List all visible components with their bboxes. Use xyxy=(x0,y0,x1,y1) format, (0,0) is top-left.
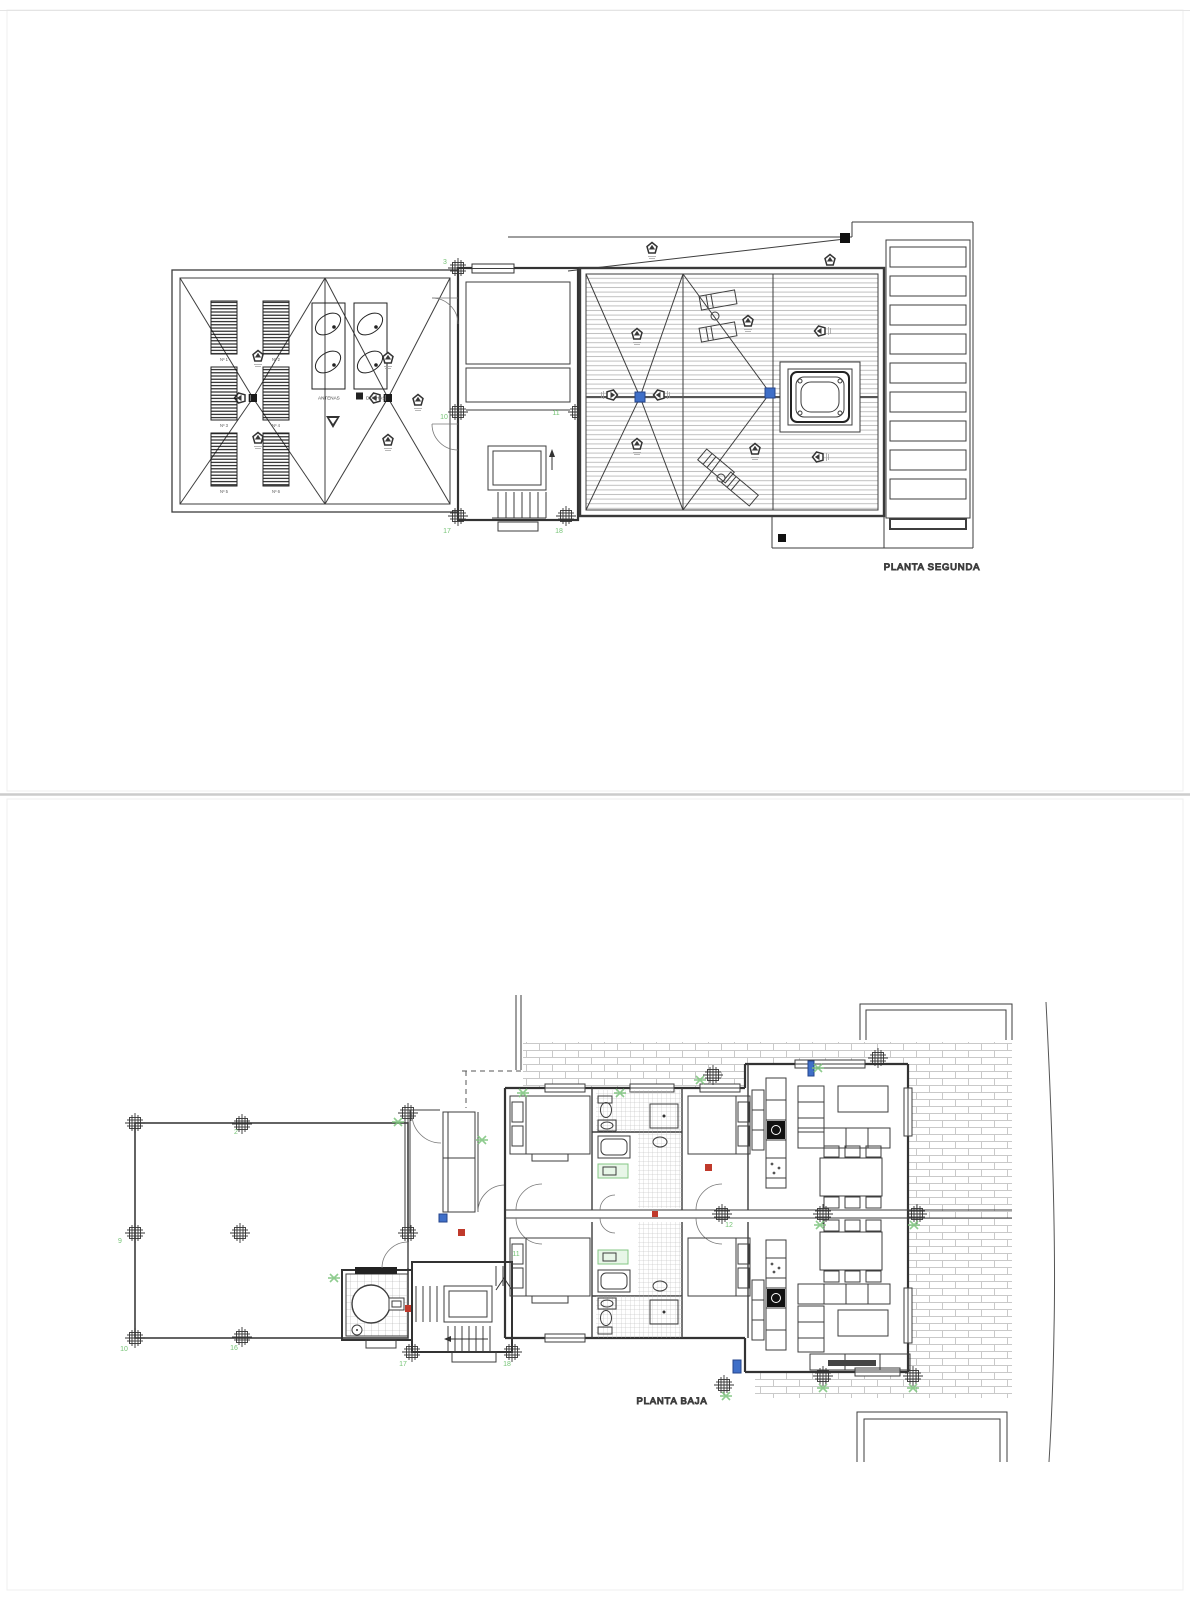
column-marker xyxy=(232,1327,252,1347)
antenas-label: ANTENAS xyxy=(318,396,340,401)
grid-number: 10 xyxy=(440,414,448,421)
water-tank xyxy=(352,1285,390,1323)
door-swing xyxy=(412,1114,441,1143)
plot-boundary-curve xyxy=(1046,1002,1055,1462)
living-rooms xyxy=(798,1086,910,1370)
coffee-table xyxy=(838,1086,888,1112)
plan-baja: PLANTA BAJA 29101611121718 xyxy=(118,995,1054,1462)
solar-collectors xyxy=(311,303,387,389)
door-swing xyxy=(696,1184,722,1210)
bathrooms-upper xyxy=(596,1090,682,1208)
grid-number: 17 xyxy=(443,528,451,535)
marker-red xyxy=(705,1164,712,1171)
marker-green xyxy=(328,1274,340,1282)
door-swing xyxy=(516,1218,542,1244)
terrace-node xyxy=(778,534,786,542)
drawing-canvas: Nº 1 Nº 2 Nº 3 Nº 4 Nº 5 Nº 6 xyxy=(0,0,1190,1600)
column-marker xyxy=(714,1375,734,1395)
drain-icon xyxy=(253,433,263,449)
utility-room xyxy=(342,1242,412,1348)
marker-red xyxy=(458,1229,465,1236)
marker-blue xyxy=(733,1360,741,1373)
grid-number: 11 xyxy=(512,1251,519,1258)
segunda-core xyxy=(432,258,604,531)
grid-number: 3 xyxy=(443,259,447,266)
marker-green xyxy=(392,1118,404,1126)
column-marker xyxy=(448,402,468,422)
column-marker xyxy=(712,1204,732,1224)
column-marker xyxy=(125,1113,145,1133)
panel-label: Nº 2 xyxy=(272,357,281,362)
marker-red xyxy=(652,1211,658,1217)
deck-node-blue xyxy=(635,392,645,402)
column-marker xyxy=(502,1342,522,1362)
hot-tub xyxy=(780,362,860,432)
coffee-table xyxy=(838,1310,888,1336)
planter-bottom-right xyxy=(857,1412,1007,1462)
column-marker xyxy=(230,1223,250,1243)
door-swing xyxy=(696,1218,722,1244)
sofa xyxy=(798,1284,890,1304)
entrance-hall xyxy=(405,1110,505,1236)
plan-segunda: Nº 1 Nº 2 Nº 3 Nº 4 Nº 5 Nº 6 xyxy=(172,222,980,573)
panel-label: Nº 3 xyxy=(220,423,229,428)
floorplan-svg: Nº 1 Nº 2 Nº 3 Nº 4 Nº 5 Nº 6 xyxy=(0,0,1190,1600)
dining-table xyxy=(820,1232,882,1270)
bed xyxy=(688,1096,750,1154)
door-swing xyxy=(382,1242,408,1268)
drain-icon xyxy=(413,395,423,411)
grid-number: 10 xyxy=(120,1346,128,1353)
bed xyxy=(510,1096,590,1154)
hob xyxy=(767,1289,785,1307)
kitchens xyxy=(733,1061,814,1373)
plan-baja-title: PLANTA BAJA xyxy=(637,1396,708,1407)
plan-segunda-title: PLANTA SEGUNDA xyxy=(884,562,981,573)
dining-table xyxy=(820,1158,882,1196)
drain-icon xyxy=(383,353,393,369)
antenna-symbol xyxy=(356,393,363,400)
door-swing xyxy=(600,1218,615,1233)
column-marker xyxy=(402,1342,422,1362)
column-marker xyxy=(448,506,468,526)
deck-node-blue xyxy=(765,388,775,398)
bed xyxy=(688,1238,750,1296)
door-swing xyxy=(600,1195,615,1210)
column-marker xyxy=(398,1223,418,1243)
planter-top-right xyxy=(860,1004,1012,1040)
garden-wall xyxy=(462,995,521,1108)
marker-green xyxy=(720,1392,732,1400)
panel-label: Nº 6 xyxy=(272,489,281,494)
grid-number: 18 xyxy=(555,528,563,535)
bathrooms-lower xyxy=(596,1222,682,1338)
stair-treads xyxy=(492,492,546,518)
grid-number: 12 xyxy=(725,1222,733,1229)
panel-label: Nº 4 xyxy=(272,423,281,428)
drain-icon xyxy=(383,435,393,451)
bed xyxy=(510,1238,590,1296)
door-swing xyxy=(432,298,458,324)
door-swing xyxy=(432,424,458,450)
door-swing xyxy=(516,1184,542,1210)
hob xyxy=(767,1121,785,1139)
segunda-lower-terrace xyxy=(772,516,884,548)
panel-label: Nº 5 xyxy=(220,489,229,494)
column-marker xyxy=(448,258,468,278)
column-marker xyxy=(125,1328,145,1348)
column-marker xyxy=(556,506,576,526)
grid-number: 18 xyxy=(503,1361,511,1368)
grid-number: 9 xyxy=(118,1238,122,1245)
drain-icon xyxy=(647,243,657,259)
grid-number: 2 xyxy=(234,1129,238,1136)
drain-icon xyxy=(253,351,263,367)
marker-red xyxy=(405,1305,412,1312)
grid-number: 17 xyxy=(399,1361,407,1368)
sofa xyxy=(798,1086,824,1132)
column-marker xyxy=(125,1223,145,1243)
panel-label: Nº 1 xyxy=(220,357,229,362)
duchas-label: DUCHAS xyxy=(366,396,385,401)
marker-blue xyxy=(439,1214,447,1222)
strip-node xyxy=(840,233,850,243)
grid-number: 11 xyxy=(552,410,559,417)
door-swing xyxy=(478,1185,505,1212)
grid-number: 16 xyxy=(230,1345,238,1352)
